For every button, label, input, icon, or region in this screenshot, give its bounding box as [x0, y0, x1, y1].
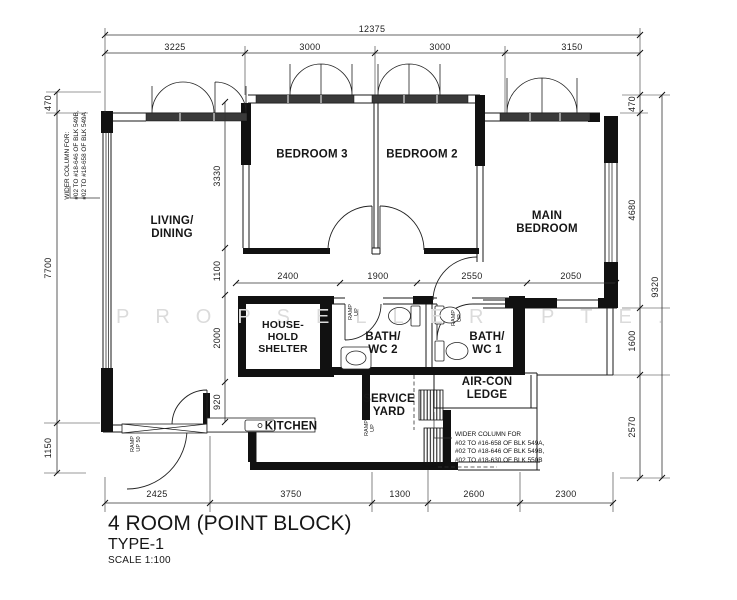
dim-right-2: 4680 — [627, 199, 637, 220]
dim-mid-h-3: 2550 — [461, 271, 482, 281]
plan-type: TYPE-1 — [108, 536, 164, 554]
room-label-main-bedroom: MAIN BEDROOM — [516, 210, 577, 236]
room-label-service-yard: SERVICE YARD — [363, 393, 415, 419]
dim-left-3: 1150 — [43, 438, 53, 459]
room-label-bedroom-3: BEDROOM 3 — [276, 148, 347, 161]
dim-mid-h-2: 1900 — [367, 271, 388, 281]
dim-top-2: 3000 — [299, 42, 320, 52]
walls-columns — [101, 95, 618, 470]
dim-left-1: 470 — [43, 95, 53, 111]
dim-bottom-4: 2600 — [463, 489, 484, 499]
room-label-bedroom-2: BEDROOM 2 — [386, 148, 457, 161]
hatch-areas — [419, 390, 444, 466]
ramp-label-bath2: RAMP UP — [349, 304, 361, 320]
dim-bottom-3: 1300 — [389, 489, 410, 499]
dim-right-1: 470 — [627, 96, 637, 112]
floor-plan-page: PROPSELLER PTE. LIVING/ DINING BEDROOM 3… — [0, 0, 737, 600]
room-label-bath-wc1: BATH/ WC 1 — [469, 331, 504, 357]
dim-mid-v-4: 920 — [212, 394, 222, 410]
room-label-aircon-ledge: AIR-CON LEDGE — [462, 376, 513, 402]
room-label-household-shelter: HOUSE- HOLD SHELTER — [258, 319, 308, 355]
dim-mid-v-3: 2000 — [212, 327, 222, 348]
watermark: PROPSELLER PTE. — [116, 306, 689, 329]
dim-mid-v-1: 3330 — [212, 165, 222, 186]
floor-plan-canvas — [0, 0, 737, 600]
dim-top-1: 3225 — [164, 42, 185, 52]
dim-top-4: 3150 — [561, 42, 582, 52]
ramp-label-entrance: RAMP UP 50 — [131, 436, 143, 452]
dim-bottom-2: 3750 — [280, 489, 301, 499]
plan-scale: SCALE 1:100 — [108, 555, 171, 566]
dim-top-3: 3000 — [429, 42, 450, 52]
note-wider-column-right: WIDER COLUMN FOR #02 TO #16-658 OF BLK 5… — [455, 431, 544, 466]
entrance-threshold — [122, 424, 207, 433]
dim-left-2: 7700 — [43, 257, 53, 278]
dim-top-total: 12375 — [359, 24, 386, 34]
dim-right-4: 2570 — [627, 416, 637, 437]
dim-mid-h-1: 2400 — [277, 271, 298, 281]
room-label-bath-wc2: BATH/ WC 2 — [365, 331, 400, 357]
room-label-living-dining: LIVING/ DINING — [151, 215, 194, 241]
dim-bottom-1: 2425 — [146, 489, 167, 499]
walls-thin — [103, 95, 617, 470]
dim-mid-h-4: 2050 — [560, 271, 581, 281]
room-label-kitchen: KITCHEN — [265, 420, 318, 433]
dim-right-3: 1600 — [627, 330, 637, 351]
window-swing-arcs — [152, 64, 577, 113]
dim-mid-v-2: 1100 — [212, 261, 222, 282]
ramp-label-service-yard: RAMP UP — [365, 420, 377, 436]
dim-right-total: 9320 — [650, 276, 660, 297]
ramp-label-bath1: RAMP UP — [452, 310, 464, 326]
dim-bottom-5: 2300 — [555, 489, 576, 499]
note-wider-column-left: WIDER COLUMN FOR: #02 TO #18-646 OF BLK … — [64, 110, 90, 199]
plan-title: 4 ROOM (POINT BLOCK) — [108, 512, 351, 536]
